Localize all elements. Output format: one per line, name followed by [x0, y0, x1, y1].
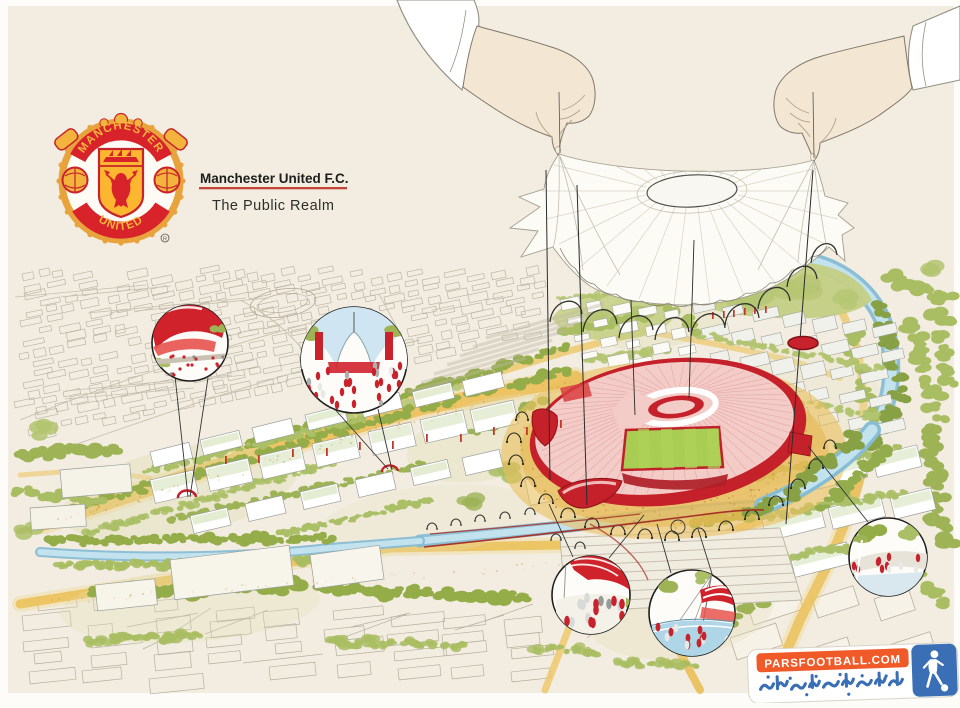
svg-text:R: R — [163, 237, 167, 243]
svg-text:The Public Realm: The Public Realm — [212, 198, 334, 214]
svg-text:Manchester United F.C.: Manchester United F.C. — [200, 171, 349, 186]
